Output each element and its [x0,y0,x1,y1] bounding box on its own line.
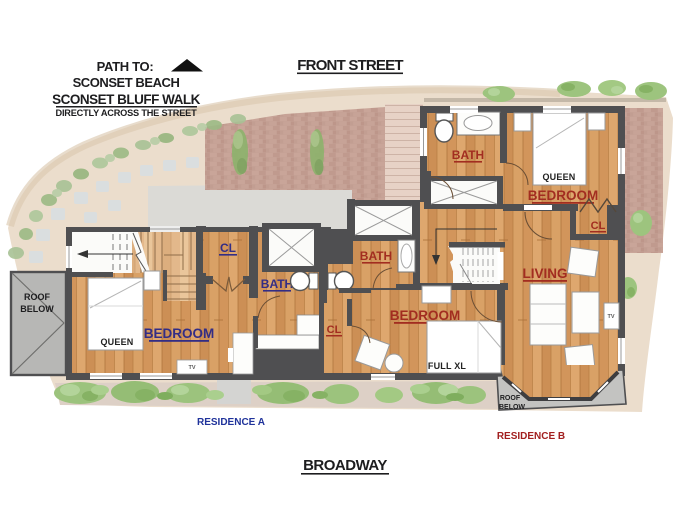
svg-text:SCONSET BLUFF WALK: SCONSET BLUFF WALK [52,92,200,107]
svg-text:BELOW: BELOW [20,304,54,314]
svg-text:QUEEN: QUEEN [100,337,133,347]
svg-text:DIRECTLY ACROSS THE STREET: DIRECTLY ACROSS THE STREET [56,108,198,118]
svg-text:BEDROOM: BEDROOM [144,326,215,341]
svg-text:BATH: BATH [360,249,392,263]
svg-text:SCONSET BEACH: SCONSET BEACH [73,75,180,90]
svg-text:FRONT STREET: FRONT STREET [297,57,403,74]
svg-text:BATH: BATH [261,277,293,291]
svg-text:BATH: BATH [452,148,484,162]
svg-text:CL: CL [591,220,606,232]
svg-text:ROOF: ROOF [24,292,51,302]
svg-text:BROADWAY: BROADWAY [303,457,387,474]
svg-text:BELOW: BELOW [499,404,525,411]
svg-text:RESIDENCE A: RESIDENCE A [197,417,265,428]
svg-text:FULL XL: FULL XL [428,361,467,371]
svg-text:TV: TV [188,365,195,371]
svg-text:LIVING: LIVING [522,266,567,281]
svg-text:RESIDENCE B: RESIDENCE B [497,431,565,442]
svg-text:TV: TV [607,314,614,320]
svg-text:ROOF: ROOF [500,395,521,402]
svg-text:CL: CL [327,324,342,336]
svg-text:CL: CL [220,241,236,255]
svg-text:PATH TO:: PATH TO: [97,59,154,74]
svg-text:QUEEN: QUEEN [542,172,575,182]
